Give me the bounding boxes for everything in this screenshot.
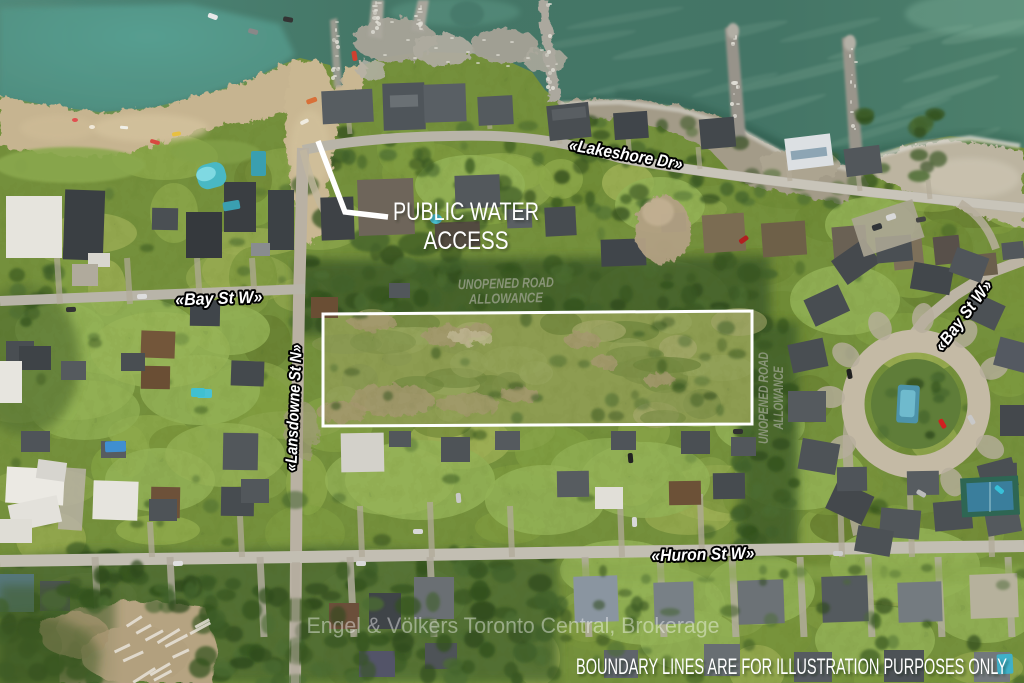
svg-text:ALLOWANCE: ALLOWANCE bbox=[468, 289, 544, 307]
svg-text:Engel & Völkers Toronto Centra: Engel & Völkers Toronto Central, Brokera… bbox=[307, 613, 720, 638]
svg-text:UNOPENED ROAD: UNOPENED ROAD bbox=[755, 352, 771, 444]
svg-text:BOUNDARY LINES ARE FOR ILLUSTR: BOUNDARY LINES ARE FOR ILLUSTRATION PURP… bbox=[576, 654, 1007, 679]
svg-text:«Huron St W»: «Huron St W» bbox=[651, 544, 754, 566]
svg-text:«Bay St W»: «Bay St W» bbox=[175, 287, 263, 309]
svg-text:ACCESS: ACCESS bbox=[424, 227, 509, 255]
svg-text:ALLOWANCE: ALLOWANCE bbox=[770, 366, 786, 430]
svg-text:PUBLIC WATER: PUBLIC WATER bbox=[393, 198, 539, 226]
